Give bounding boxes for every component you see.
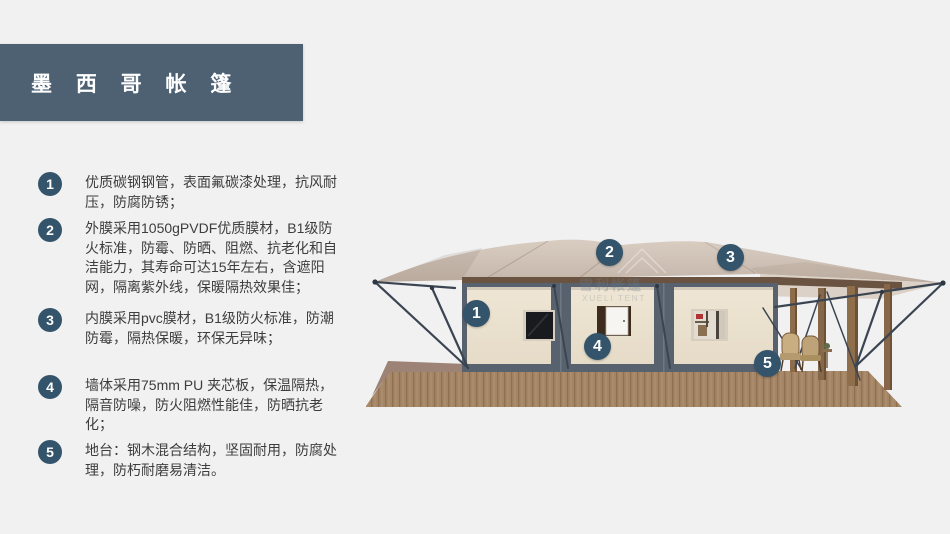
feature-badge-3: 3 [38,308,62,332]
callout-marker-3: 3 [717,244,744,271]
feature-item-5: 5 地台：钢木混合结构，坚固耐用，防腐处理，防朽耐磨易清洁。 [38,440,339,480]
watermark-text-cn: 雪利帐篷 [579,277,643,293]
feature-item-1: 1 优质碳钢钢管，表面氟碳漆处理，抗风耐压，防腐防锈； [38,172,339,212]
slide: 墨 西 哥 帐 篷 1 优质碳钢钢管，表面氟碳漆处理，抗风耐压，防腐防锈； 2 … [0,0,950,534]
feature-text-5: 地台：钢木混合结构，坚固耐用，防腐处理，防朽耐磨易清洁。 [85,441,339,480]
tent-illustration: 雪利帐篷 XUELI TENT [350,200,950,435]
callout-marker-5: 5 [754,350,781,377]
feature-item-2: 2 外膜采用1050gPVDF优质膜材，B1级防火标准，防霉、防晒、阻燃、抗老化… [38,218,339,297]
page-title: 墨 西 哥 帐 篷 [31,68,240,98]
feature-text-1: 优质碳钢钢管，表面氟碳漆处理，抗风耐压，防腐防锈； [85,173,339,212]
callout-marker-1: 1 [463,300,490,327]
feature-text-4: 墙体采用75mm PU 夹芯板，保温隔热，隔音防噪，防火阻燃性能佳，防晒抗老化； [85,376,339,435]
title-banner: 墨 西 哥 帐 篷 [0,44,303,121]
feature-badge-2: 2 [38,218,62,242]
tent-diagram: 雪利帐篷 XUELI TENT 1 2 3 4 5 [350,200,950,435]
guy-wires-left [375,282,468,368]
feature-item-3: 3 内膜采用pvc膜材，B1级防火标准，防潮防霉，隔热保暖，环保无异味； [38,308,339,348]
callout-marker-2: 2 [596,239,623,266]
door-open [597,306,631,336]
feature-text-3: 内膜采用pvc膜材，B1级防火标准，防潮防霉，隔热保暖，环保无异味； [85,309,339,348]
watermark-text-en: XUELI TENT [582,293,646,303]
feature-item-4: 4 墙体采用75mm PU 夹芯板，保温隔热，隔音防噪，防火阻燃性能佳，防晒抗老… [38,375,339,435]
feature-badge-1: 1 [38,172,62,196]
feature-badge-4: 4 [38,375,62,399]
feature-badge-5: 5 [38,440,62,464]
window-open [691,309,728,341]
feature-text-2: 外膜采用1050gPVDF优质膜材，B1级防火标准，防霉、防晒、阻燃、抗老化和自… [85,219,339,297]
window-dark [523,310,555,341]
callout-marker-4: 4 [584,333,611,360]
